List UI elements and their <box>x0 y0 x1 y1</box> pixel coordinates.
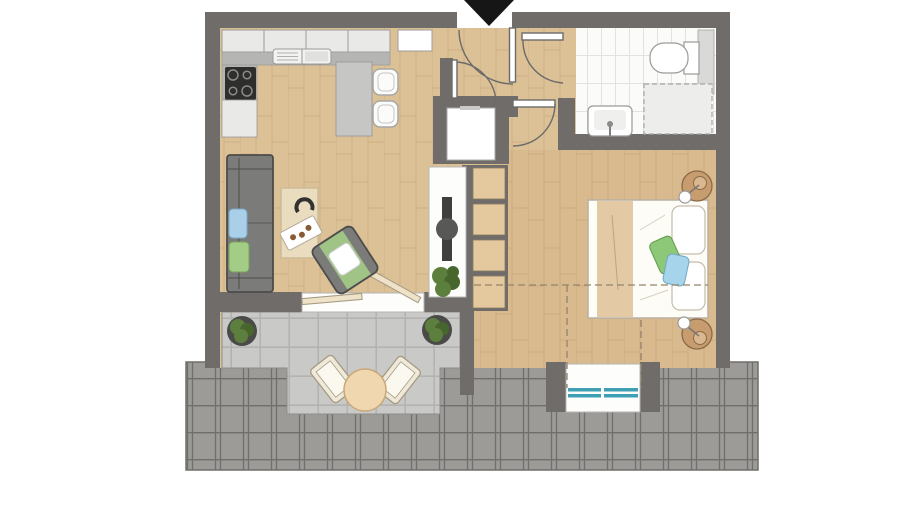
window-mullion <box>601 386 604 399</box>
wall-top-left <box>205 12 457 28</box>
shelf-box-1 <box>473 168 505 199</box>
utility-closet <box>447 106 495 160</box>
bed-runner <box>597 201 633 317</box>
toilet-bowl <box>650 43 688 73</box>
appliance <box>447 108 495 160</box>
shelf-box-2 <box>473 204 505 235</box>
bathroom-door-leaf <box>522 33 563 40</box>
lamp-bottom <box>678 317 690 329</box>
wall-left <box>205 12 220 368</box>
sofa-pillow-blue <box>229 209 247 238</box>
hall-door-leaf <box>452 60 457 98</box>
plant-balcony-left <box>227 316 257 346</box>
plant-balcony-right <box>422 315 452 345</box>
sofa <box>227 155 273 292</box>
wall-living-bottom-left <box>205 292 302 312</box>
bed-pillow-1 <box>672 206 705 254</box>
dormer-window <box>566 364 640 412</box>
wall-partition-lower <box>460 312 474 395</box>
shower <box>644 84 712 134</box>
wall-window-bay-right <box>640 362 660 412</box>
lamp-top <box>679 191 691 203</box>
entrance-door-leaf <box>510 28 516 82</box>
floor-plan-canvas <box>0 0 900 507</box>
faucet-knob <box>607 121 613 127</box>
tv-mount <box>436 218 458 240</box>
floor-plan <box>0 0 900 507</box>
kitchen-island <box>336 62 372 136</box>
wall-bathroom-bottom <box>558 134 716 150</box>
bedroom-door-leaf <box>513 100 555 107</box>
shelf-unit <box>470 165 508 311</box>
entrance-arrow-icon <box>464 0 514 26</box>
shelf-box-4 <box>473 276 505 308</box>
sink-bowl <box>305 52 328 62</box>
sofa-pillow-green <box>229 242 249 272</box>
wall-right <box>716 12 730 368</box>
appliance-handle <box>460 106 480 110</box>
shelf-box-3 <box>473 240 505 271</box>
tv-sideboard <box>429 167 466 297</box>
wall-cabinet <box>398 30 432 51</box>
wall-window-bay-left <box>546 362 566 412</box>
base-cabinet <box>222 100 257 137</box>
wall-stub-hall <box>440 58 453 96</box>
double-bed <box>588 200 708 318</box>
wall-top-right <box>512 12 730 28</box>
balcony-table <box>344 369 386 411</box>
